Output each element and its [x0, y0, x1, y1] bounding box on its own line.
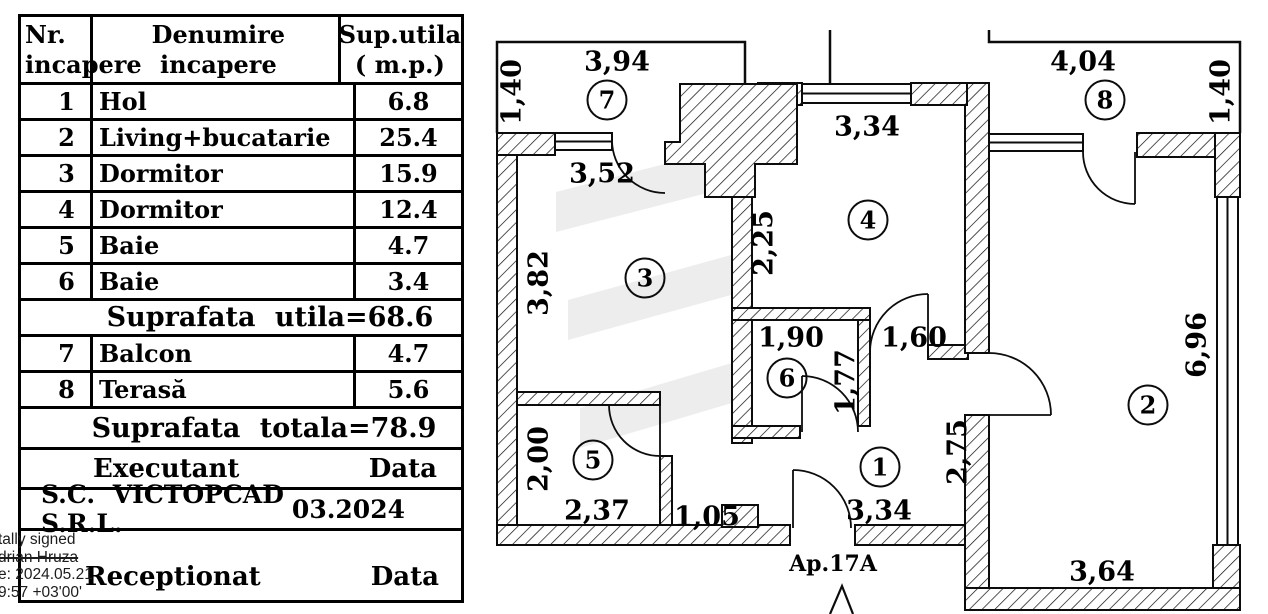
signature-line: 9:57 +03'00'	[0, 584, 93, 602]
total-text: Suprafata totala=78.9	[46, 413, 437, 444]
room-name: Terasă	[93, 373, 356, 406]
header-nr: Nr.incapere	[21, 17, 93, 82]
header-suprafata: Sup.utila( m.p.)	[339, 17, 461, 82]
company-date: 03.2024	[292, 495, 405, 524]
room-name: Baie	[93, 229, 356, 262]
room-number: 8	[21, 373, 93, 406]
total-row: Suprafata totala=78.9	[21, 409, 461, 450]
executant-data-label: Data	[369, 454, 437, 484]
walls	[497, 83, 1240, 610]
table-row: 7 Balcon 4.7	[21, 337, 461, 373]
table-row: 6 Baie 3.4	[21, 265, 461, 301]
header-denumire: Denumireincapere	[93, 17, 341, 82]
rows-main: 1 Hol 6.8 2 Living+bucatarie 25.4 3 Dorm…	[21, 85, 461, 301]
room-area: 4.7	[356, 337, 461, 370]
room-number: 4	[21, 193, 93, 226]
rows-extra: 7 Balcon 4.7 8 Terasă 5.6	[21, 337, 461, 409]
outlines	[497, 30, 1240, 133]
doors	[609, 140, 1135, 528]
executant-label: Executant	[93, 454, 239, 484]
room-name: Living+bucatarie	[93, 121, 356, 154]
area-table: Nr.incapere Denumireincapere Sup.utila( …	[18, 14, 464, 603]
table-row: 8 Terasă 5.6	[21, 373, 461, 409]
room-name: Dormitor	[93, 157, 356, 190]
room-number: 7	[21, 337, 93, 370]
room-number: 5	[21, 229, 93, 262]
room-area: 25.4	[356, 121, 461, 154]
signature-line: drian Hruza	[0, 549, 93, 567]
room-number: 3	[21, 157, 93, 190]
table-header-row: Nr.incapere Denumireincapere Sup.utila( …	[21, 17, 461, 85]
room-name: Baie	[93, 265, 356, 298]
room-number: 1	[21, 85, 93, 118]
room-number: 6	[21, 265, 93, 298]
signature-line: tally signed	[0, 531, 93, 549]
table-row: 3 Dormitor 15.9	[21, 157, 461, 193]
table-row: 5 Baie 4.7	[21, 229, 461, 265]
signature-line: e: 2024.05.21	[0, 566, 93, 584]
room-area: 3.4	[356, 265, 461, 298]
apartment-label: Ap.17A	[789, 551, 877, 577]
entrance-arrow	[830, 586, 853, 614]
digital-signature: tally signed drian Hruza e: 2024.05.21 9…	[0, 531, 93, 601]
table-row: 1 Hol 6.8	[21, 85, 461, 121]
company-name: S.C. VICTOPCAD S.R.L.	[41, 480, 292, 538]
room-area: 4.7	[356, 229, 461, 262]
table-row: 4 Dormitor 12.4	[21, 193, 461, 229]
room-area: 5.6	[356, 373, 461, 406]
room-name: Balcon	[93, 337, 356, 370]
subtotal-text: Suprafata utila=68.6	[49, 302, 434, 333]
receptionat-data-label: Data	[371, 562, 439, 592]
room-area: 15.9	[356, 157, 461, 190]
room-name: Dormitor	[93, 193, 356, 226]
room-number: 2	[21, 121, 93, 154]
room-name: Hol	[93, 85, 356, 118]
receptionat-label: Receptionat	[85, 562, 261, 592]
table-row: 2 Living+bucatarie 25.4	[21, 121, 461, 157]
subtotal-row: Suprafata utila=68.6	[21, 301, 461, 337]
company-row: S.C. VICTOPCAD S.R.L. 03.2024	[21, 490, 461, 531]
room-area: 6.8	[356, 85, 461, 118]
room-area: 12.4	[356, 193, 461, 226]
